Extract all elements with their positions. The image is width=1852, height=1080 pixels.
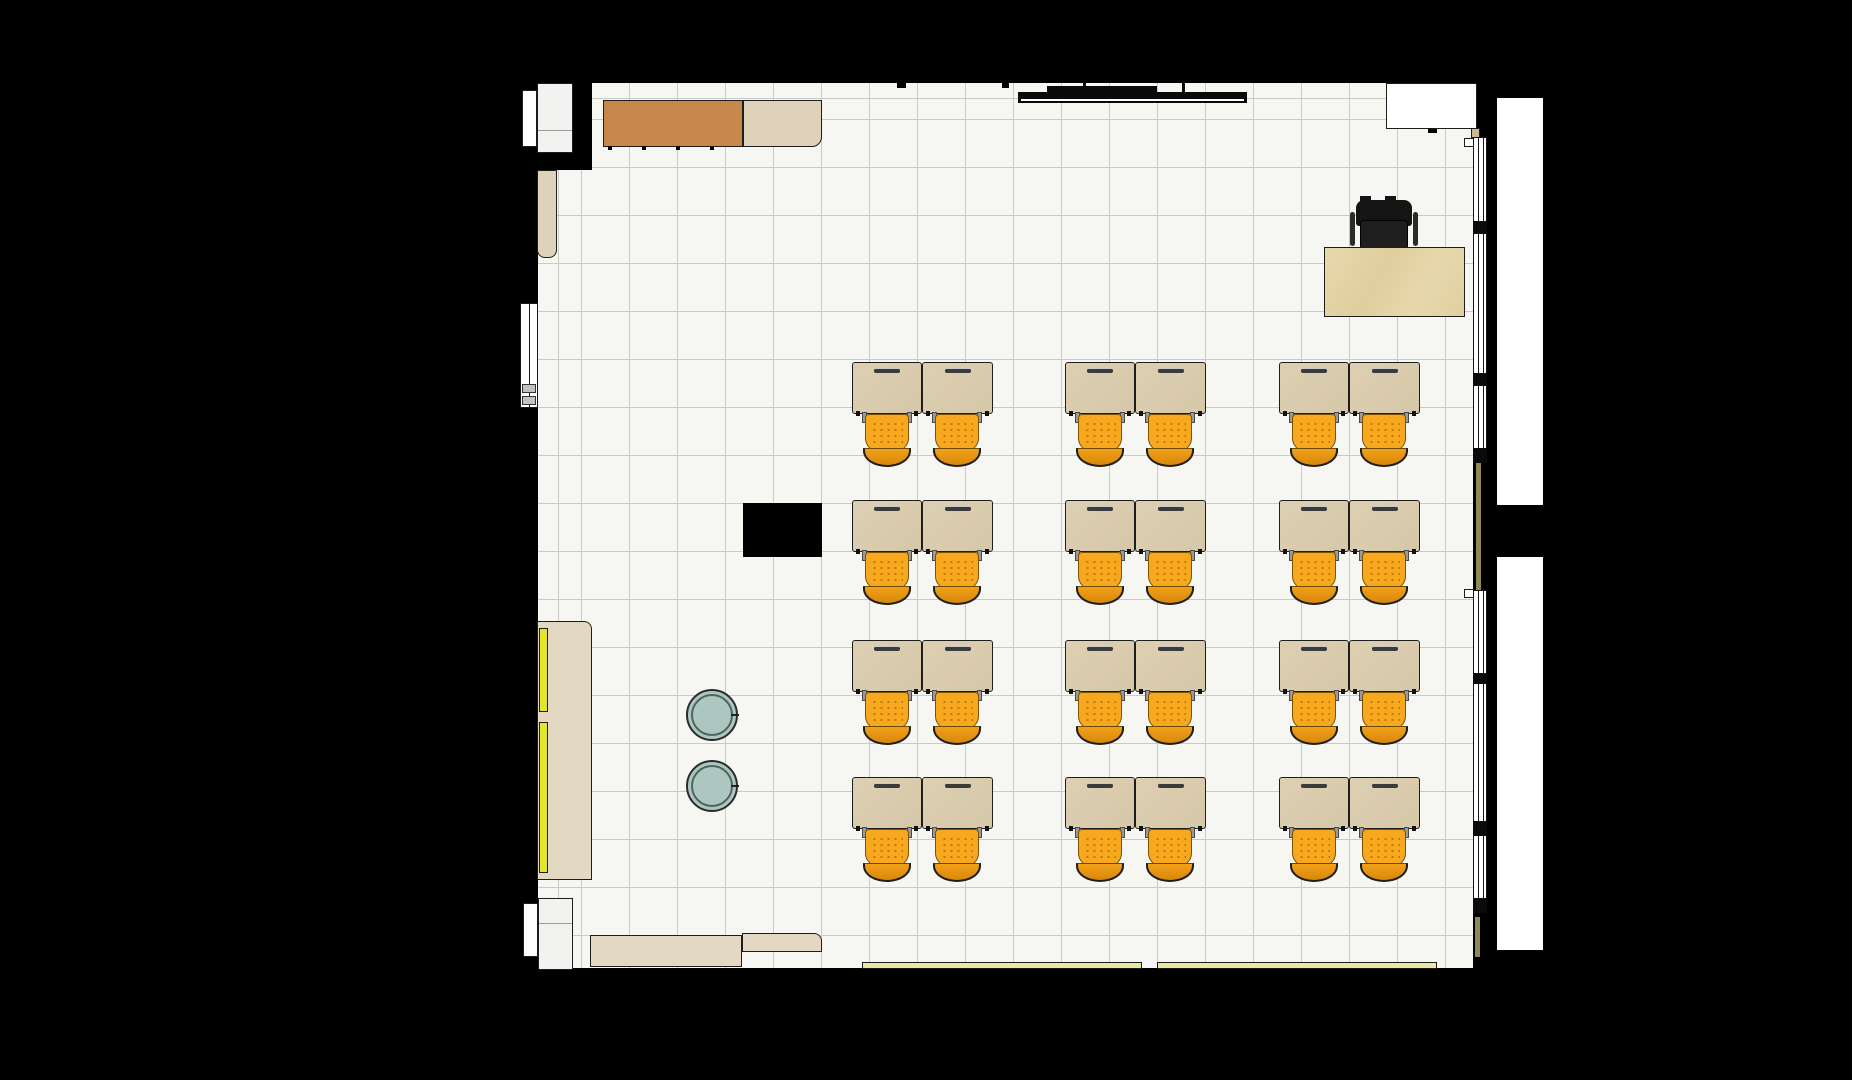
desk-foot (856, 549, 860, 554)
chair-seat (1362, 552, 1406, 590)
bottom-wall-board-strip (862, 962, 1142, 969)
desk-pencil-slot (1301, 783, 1327, 788)
chair-backrest (1146, 448, 1194, 467)
desk-foot (1353, 689, 1357, 694)
student-chair (1290, 414, 1338, 467)
desk-foot (926, 826, 930, 831)
chair-seat (1362, 829, 1406, 867)
chair-backrest (933, 863, 981, 882)
student-desk (1279, 362, 1349, 414)
student-chair (1360, 692, 1408, 745)
window-frame-line (1478, 591, 1479, 911)
chair-seat-perforations (1084, 421, 1116, 447)
student-chair (1360, 829, 1408, 882)
chair-backrest (1076, 863, 1124, 882)
teacher-chair (1350, 200, 1418, 250)
chair-backrest (933, 448, 981, 467)
chair-seat (1148, 552, 1192, 590)
desk-foot (926, 689, 930, 694)
door-recess-bottom-left (538, 898, 573, 970)
student-desk (1135, 500, 1206, 552)
desk-pencil-slot (1372, 506, 1398, 511)
desk-foot (1412, 826, 1416, 831)
window-frame-line (1483, 138, 1484, 461)
desk-foot (985, 689, 989, 694)
door-stop-nub (1428, 129, 1437, 133)
chair-seat (1078, 692, 1122, 730)
chair-seat (1362, 692, 1406, 730)
chair-seat (1362, 414, 1406, 452)
student-desk-pair (1279, 500, 1420, 605)
chair-seat-perforations (871, 699, 903, 725)
chair-seat-perforations (871, 421, 903, 447)
desk-foot (1127, 411, 1131, 416)
whiteboard-bracket (1047, 86, 1157, 92)
student-chair (1290, 829, 1338, 882)
student-desk (922, 500, 993, 552)
desk-foot (856, 689, 860, 694)
chair-backrest (933, 586, 981, 605)
student-chair (933, 829, 981, 882)
desk-foot (914, 411, 918, 416)
door-recess-top-left (537, 83, 573, 153)
teacher-desk (1324, 247, 1465, 317)
desk-foot (856, 411, 860, 416)
chair-seat (935, 552, 979, 590)
student-desk-pair (1065, 362, 1206, 467)
chair-seat-perforations (1154, 559, 1186, 585)
student-desk (1349, 640, 1420, 692)
student-chair (1076, 552, 1124, 605)
chair-seat-perforations (871, 836, 903, 862)
chair-backrest (933, 726, 981, 745)
chair-seat-perforations (1298, 699, 1330, 725)
desk-pencil-slot (1087, 783, 1113, 788)
chair-seat (935, 829, 979, 867)
student-desk (1065, 640, 1135, 692)
student-desk (1065, 777, 1135, 829)
student-desk-pair (852, 500, 993, 605)
desk-foot (914, 549, 918, 554)
chair-backrest (1360, 726, 1408, 745)
desk-foot (1412, 549, 1416, 554)
desk-foot (1353, 826, 1357, 831)
chair-seat (865, 829, 909, 867)
chair-seat (1148, 692, 1192, 730)
desk-pencil-slot (874, 368, 900, 373)
cabinet-foot (710, 146, 714, 150)
cabinet-top-brown (603, 100, 743, 147)
student-desk (922, 777, 993, 829)
cabinet-foot (676, 146, 680, 150)
whiteboard-tray-line (1021, 99, 1244, 101)
chair-backrest (1076, 586, 1124, 605)
stool-seat-ring (691, 694, 733, 736)
desk-foot (1283, 411, 1287, 416)
chair-seat-perforations (1084, 699, 1116, 725)
desk-foot (1198, 411, 1202, 416)
student-desk (922, 362, 993, 414)
chair-backrest (1076, 448, 1124, 467)
chair-seat (865, 414, 909, 452)
desk-foot (926, 549, 930, 554)
chair-seat (1292, 414, 1336, 452)
student-chair (1146, 552, 1194, 605)
door-recess-divider (538, 130, 572, 131)
desk-foot (1127, 689, 1131, 694)
student-chair (1076, 829, 1124, 882)
chair-seat-perforations (941, 559, 973, 585)
desk-pencil-slot (945, 506, 971, 511)
student-desk (1279, 500, 1349, 552)
cabinet-door-strip (539, 722, 548, 873)
round-stool (686, 689, 738, 741)
desk-foot (926, 411, 930, 416)
door-alcove-top-right (1386, 83, 1477, 129)
desk-pencil-slot (1087, 646, 1113, 651)
window-mullion (1473, 448, 1487, 463)
desk-foot (1069, 689, 1073, 694)
chair-armrest (1413, 212, 1418, 246)
desk-foot (1069, 411, 1073, 416)
chair-backrest (1076, 726, 1124, 745)
student-chair (1360, 414, 1408, 467)
stool-handle-tick (731, 714, 739, 716)
cabinet-bottom-rounded (742, 933, 822, 952)
student-chair (1290, 552, 1338, 605)
chair-seat (865, 692, 909, 730)
student-desk-pair (1279, 777, 1420, 882)
chair-seat-perforations (1154, 836, 1186, 862)
cabinet-left-upper (537, 170, 557, 258)
chair-seat (935, 692, 979, 730)
chair-seat (1292, 692, 1336, 730)
chair-seat (1292, 829, 1336, 867)
chair-backrest (863, 863, 911, 882)
chair-backrest (1360, 448, 1408, 467)
chair-backrest (1290, 586, 1338, 605)
chair-seat-perforations (1368, 836, 1400, 862)
window-mullion (1473, 821, 1487, 836)
chair-seat-perforations (1084, 836, 1116, 862)
chair-seat-perforations (1154, 421, 1186, 447)
chair-seat (1292, 552, 1336, 590)
student-desk (852, 640, 922, 692)
desk-foot (1139, 689, 1143, 694)
bottom-wall-board-strip (1157, 962, 1437, 969)
left-wall-window (520, 303, 538, 408)
door-panel-top-left (522, 90, 537, 147)
student-chair (863, 552, 911, 605)
desk-foot (914, 826, 918, 831)
desk-pencil-slot (945, 646, 971, 651)
desk-pencil-slot (1301, 506, 1327, 511)
wall-joint-nub (1002, 83, 1009, 88)
student-desk (1135, 362, 1206, 414)
student-desk (852, 500, 922, 552)
desk-foot (1412, 411, 1416, 416)
chair-backrest (1360, 863, 1408, 882)
desk-pencil-slot (1087, 368, 1113, 373)
student-desk-pair (852, 640, 993, 745)
desk-foot (1283, 826, 1287, 831)
student-desk-pair (1279, 362, 1420, 467)
cabinet-foot (642, 146, 646, 150)
desk-pencil-slot (1158, 368, 1184, 373)
desk-foot (1341, 549, 1345, 554)
door-recess-divider (539, 923, 572, 924)
chair-backrest (1146, 726, 1194, 745)
chair-seat (1078, 829, 1122, 867)
student-desk-pair (852, 362, 993, 467)
chair-seat-perforations (941, 699, 973, 725)
desk-foot (1139, 411, 1143, 416)
student-desk (852, 362, 922, 414)
chair-seat-perforations (1368, 699, 1400, 725)
cabinet-bottom-left (590, 935, 742, 967)
desk-foot (1198, 689, 1202, 694)
desk-foot (1069, 826, 1073, 831)
wall-joint-nub (897, 83, 906, 88)
chair-seat (1148, 829, 1192, 867)
desk-foot (1341, 411, 1345, 416)
desk-foot (1341, 689, 1345, 694)
chair-backrest (1146, 586, 1194, 605)
student-desk (1065, 500, 1135, 552)
desk-foot (1353, 411, 1357, 416)
floor-plan (0, 0, 1852, 1080)
chair-seat (1078, 552, 1122, 590)
desk-foot (1139, 826, 1143, 831)
student-chair (1290, 692, 1338, 745)
student-desk (1279, 777, 1349, 829)
chair-seat-perforations (1084, 559, 1116, 585)
stool-seat-ring (691, 765, 733, 807)
chair-seat (935, 414, 979, 452)
desk-foot (1283, 549, 1287, 554)
window-frame-line (1483, 591, 1484, 911)
chair-seat (865, 552, 909, 590)
window-band-upper (1473, 137, 1487, 462)
chair-seat-perforations (1154, 699, 1186, 725)
desk-pencil-slot (1301, 368, 1327, 373)
student-desk-pair (1065, 500, 1206, 605)
student-chair (933, 552, 981, 605)
student-desk (922, 640, 993, 692)
chair-seat-perforations (1368, 421, 1400, 447)
desk-foot (1198, 826, 1202, 831)
desk-pencil-slot (1158, 646, 1184, 651)
desk-pencil-slot (1301, 646, 1327, 651)
student-chair (863, 692, 911, 745)
wall-pier-bulge (1481, 505, 1545, 557)
window-mullion (1473, 221, 1487, 234)
door-panel-bottom-left (523, 903, 538, 957)
desk-pencil-slot (874, 783, 900, 788)
desk-pencil-slot (1372, 368, 1398, 373)
chair-seat-perforations (941, 836, 973, 862)
chair-backrest (1290, 448, 1338, 467)
chair-seat-perforations (1368, 559, 1400, 585)
student-chair (1146, 692, 1194, 745)
round-stool (686, 760, 738, 812)
chair-seat (1360, 220, 1408, 250)
wall-column-block (743, 503, 822, 557)
student-desk-pair (1279, 640, 1420, 745)
student-chair (863, 414, 911, 467)
chair-seat-perforations (941, 421, 973, 447)
desk-foot (985, 826, 989, 831)
desk-pencil-slot (874, 646, 900, 651)
exterior-walkway (1497, 557, 1543, 950)
student-desk (1349, 777, 1420, 829)
student-chair (1146, 829, 1194, 882)
desk-foot (1127, 826, 1131, 831)
desk-foot (1341, 826, 1345, 831)
student-chair (1146, 414, 1194, 467)
student-chair (933, 692, 981, 745)
chair-seat (1078, 414, 1122, 452)
desk-pencil-slot (874, 506, 900, 511)
window-frame-line (1478, 138, 1479, 461)
chair-seat-perforations (871, 559, 903, 585)
window-hardware (522, 384, 536, 393)
cabinet-door-strip (539, 628, 548, 712)
student-desk (1135, 640, 1206, 692)
desk-pencil-slot (1158, 506, 1184, 511)
student-desk-pair (852, 777, 993, 882)
window-band-lower (1473, 590, 1487, 912)
chair-backrest (1146, 863, 1194, 882)
student-desk-pair (1065, 640, 1206, 745)
student-chair (1360, 552, 1408, 605)
chair-backrest (863, 586, 911, 605)
student-desk (1349, 500, 1420, 552)
desk-foot (856, 826, 860, 831)
cabinet-foot (608, 146, 612, 150)
exterior-walkway (1497, 98, 1543, 505)
desk-foot (1127, 549, 1131, 554)
desk-pencil-slot (945, 368, 971, 373)
desk-foot (1283, 689, 1287, 694)
desk-pencil-slot (1372, 783, 1398, 788)
student-desk (852, 777, 922, 829)
whiteboard-mount-tick (1083, 83, 1086, 92)
desk-foot (1069, 549, 1073, 554)
window-mullion (1473, 673, 1487, 684)
student-chair (1076, 414, 1124, 467)
student-chair (1076, 692, 1124, 745)
chair-backrest (1290, 863, 1338, 882)
desk-pencil-slot (1087, 506, 1113, 511)
desk-foot (1139, 549, 1143, 554)
desk-foot (1353, 549, 1357, 554)
student-chair (933, 414, 981, 467)
student-desk (1135, 777, 1206, 829)
desk-foot (1198, 549, 1202, 554)
whiteboard-mount-tick (1182, 83, 1185, 92)
whiteboard-plan-bar (1018, 92, 1247, 103)
student-desk (1349, 362, 1420, 414)
student-desk (1065, 362, 1135, 414)
wall-panel-khaki (1475, 917, 1480, 957)
chair-seat (1148, 414, 1192, 452)
window-hardware (522, 396, 536, 405)
desk-foot (985, 549, 989, 554)
desk-foot (985, 411, 989, 416)
chair-seat-perforations (1298, 836, 1330, 862)
student-desk (1279, 640, 1349, 692)
chair-backrest (1290, 726, 1338, 745)
chair-armrest (1350, 212, 1355, 246)
chair-seat-perforations (1298, 559, 1330, 585)
stool-handle-tick (731, 785, 739, 787)
desk-pencil-slot (945, 783, 971, 788)
cabinet-top-tan (743, 100, 822, 147)
chair-backrest (1360, 586, 1408, 605)
window-mullion (1473, 898, 1487, 913)
desk-pencil-slot (1372, 646, 1398, 651)
desk-foot (1412, 689, 1416, 694)
chair-backrest (863, 448, 911, 467)
student-desk-pair (1065, 777, 1206, 882)
chair-backrest (863, 726, 911, 745)
student-chair (863, 829, 911, 882)
desk-pencil-slot (1158, 783, 1184, 788)
window-mullion (1473, 373, 1487, 386)
desk-foot (914, 689, 918, 694)
chair-seat-perforations (1298, 421, 1330, 447)
